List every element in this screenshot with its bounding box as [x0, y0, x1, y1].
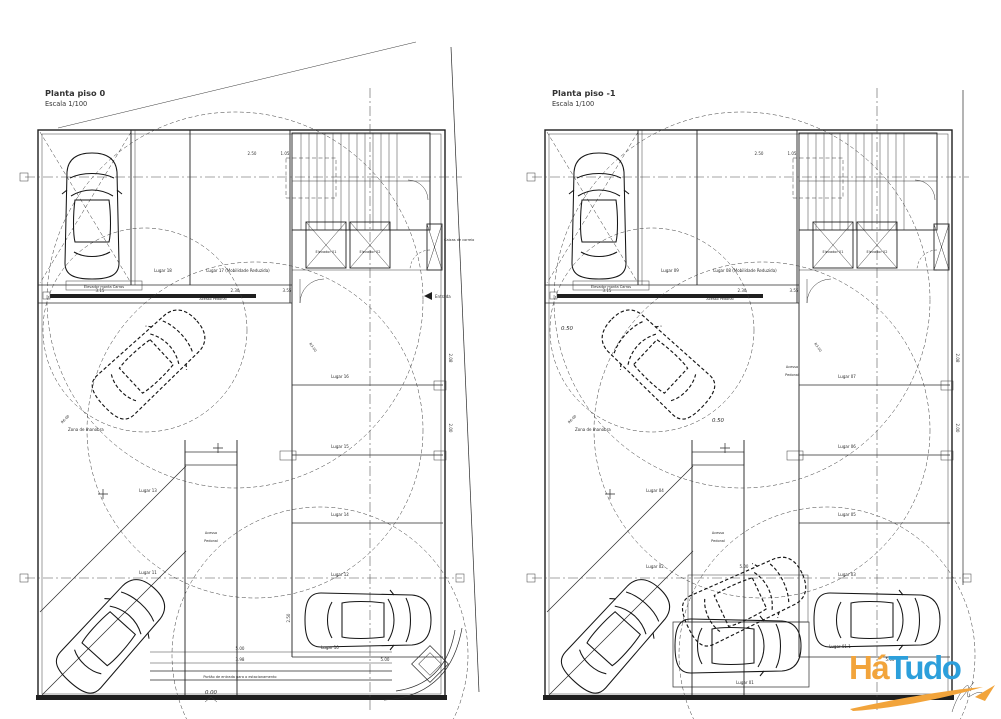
label-lugar-09: Lugar 09 [661, 268, 679, 273]
dim-200-left: 2.00 [448, 424, 453, 433]
plan-scale-right: Escala 1/100 [552, 100, 594, 108]
label-gate: Portão de entrada para o estacionamento [203, 675, 276, 679]
label-acesso-top-left: Acesso Pedonal [199, 297, 226, 301]
label-lugar-02: Lugar 02 [646, 564, 664, 569]
label-acesso-top-right: Acesso Pedonal [706, 297, 733, 301]
dim-398-left: 3.98 [236, 657, 245, 662]
label-acesso-mid-2-left: Pedonal [204, 539, 218, 543]
label-acesso-mid-1-left: Acesso [205, 531, 217, 535]
label-mailboxes: Caixas de correio [444, 238, 474, 242]
plan-piso-minus-1: Planta piso -1 Escala 1/100 Elevador mon… [527, 88, 986, 719]
label-entrada: Entrada [435, 294, 451, 299]
label-lugar-12: Lugar 12 [331, 572, 349, 577]
label-acesso-right-1: Acesso [786, 365, 798, 369]
label-acesso-right-2: Pedonal [785, 373, 799, 377]
dim-250b-left: 2.50 [286, 613, 291, 622]
label-elevador-02-right: Elevador 02 [867, 250, 888, 254]
label-lugar-16: Lugar 16 [331, 374, 349, 379]
label-lugar-08: Lugar 08 (Mobilidade Reduzida) [713, 268, 777, 273]
car-diagonal-left [48, 568, 177, 702]
label-lugar-011: Lugar 01.1 [829, 644, 851, 649]
floorplan-geometry-left [20, 88, 468, 719]
label-lugar-17: Lugar 17 (Mobilidade Reduzida) [206, 268, 270, 273]
dim-r600-right: R6.00 [567, 414, 577, 424]
site-lines-right [673, 90, 986, 712]
label-zona-manobra-left: Zona de manobra [68, 427, 104, 432]
dim-230-right: 2.30 [738, 288, 747, 293]
plan-piso-0: Planta piso 0 Escala 1/100 Elevador mont… [20, 42, 479, 719]
dim-208-right: 2.08 [955, 354, 960, 363]
dim-r300-left: R3.00 [308, 342, 317, 353]
dim-250-left: 2.50 [248, 151, 257, 156]
dim-500a-left: 5.00 [381, 657, 390, 662]
label-lugar-10: Lugar 10 [321, 645, 339, 650]
label-lugar-05: Lugar 05 [838, 512, 856, 517]
dim-r300-right: R3.00 [813, 342, 822, 353]
dim-208-left: 2.08 [448, 354, 453, 363]
dim-500b-left: 5.00 [236, 646, 245, 651]
dim-355-left: 3.55 [283, 288, 292, 293]
dim-200-right: 2.00 [955, 424, 960, 433]
car-turning-bottom-right-plan [675, 546, 815, 654]
label-lugar-06: Lugar 06 [838, 444, 856, 449]
dim-355-right: 3.55 [790, 288, 799, 293]
label-elevador-02-left: Elevador 02 [360, 250, 381, 254]
dim-250-right: 2.50 [755, 151, 764, 156]
entrance-arrow-icon [424, 292, 432, 300]
dim-315-left: 3.15 [96, 288, 105, 293]
dim-315-right: 3.15 [603, 288, 612, 293]
logo-part-ha: Há [849, 649, 888, 686]
label-level-050b: 0.50 [712, 418, 725, 424]
dim-105-right: 1.05 [788, 151, 797, 156]
plan-title-right: Planta piso -1 [552, 88, 616, 98]
label-elevador-01-left: Elevador 01 [316, 250, 337, 254]
floorplan-page: Planta piso 0 Escala 1/100 Elevador mont… [0, 0, 1001, 719]
label-lugar-01: Lugar 01 [736, 680, 754, 685]
car-bottom-right-left [305, 590, 431, 650]
label-elevador-01-right: Elevador 01 [823, 250, 844, 254]
hatudo-wordmark: HáTudo [849, 649, 960, 686]
floorplan-drawing: Planta piso 0 Escala 1/100 Elevador mont… [0, 0, 1001, 719]
drain-grate [412, 646, 449, 683]
label-acesso-mid-1-right: Acesso [712, 531, 724, 535]
label-level-0: 0.00 [205, 690, 218, 696]
label-lugar-18: Lugar 18 [154, 268, 172, 273]
label-lugar-07: Lugar 07 [838, 374, 856, 379]
label-level-050a: 0.50 [561, 326, 574, 332]
label-lugar-03: Lugar 03 [838, 572, 856, 577]
label-lugar-11: Lugar 11 [139, 570, 157, 575]
dim-105-left: 1.05 [281, 151, 290, 156]
dim-230-left: 2.30 [231, 288, 240, 293]
hatudo-watermark: HáTudo [849, 651, 1001, 713]
car-maneuvering-right [590, 298, 723, 428]
label-lugar-14: Lugar 14 [331, 512, 349, 517]
plan-scale-left: Escala 1/100 [45, 100, 87, 108]
label-lugar-15: Lugar 15 [331, 444, 349, 449]
dim-500b-right: 5.00 [740, 564, 749, 569]
logo-swoosh-icon [849, 685, 999, 715]
label-acesso-mid-2-right: Pedonal [711, 539, 725, 543]
floorplan-geometry-right [527, 88, 975, 719]
car-maneuvering-left [83, 298, 216, 428]
car-diagonal-right [553, 568, 682, 702]
dim-r600-left: R6.00 [60, 414, 70, 424]
label-lugar-13: Lugar 13 [139, 488, 157, 493]
car-lugar-01 [675, 616, 801, 676]
logo-part-tudo: Tudo [888, 649, 960, 686]
label-zona-manobra-right: Zona de manobra [575, 427, 611, 432]
plan-title-left: Planta piso 0 [45, 88, 105, 98]
site-lines-left [58, 42, 479, 702]
label-lugar-04: Lugar 04 [646, 488, 664, 493]
